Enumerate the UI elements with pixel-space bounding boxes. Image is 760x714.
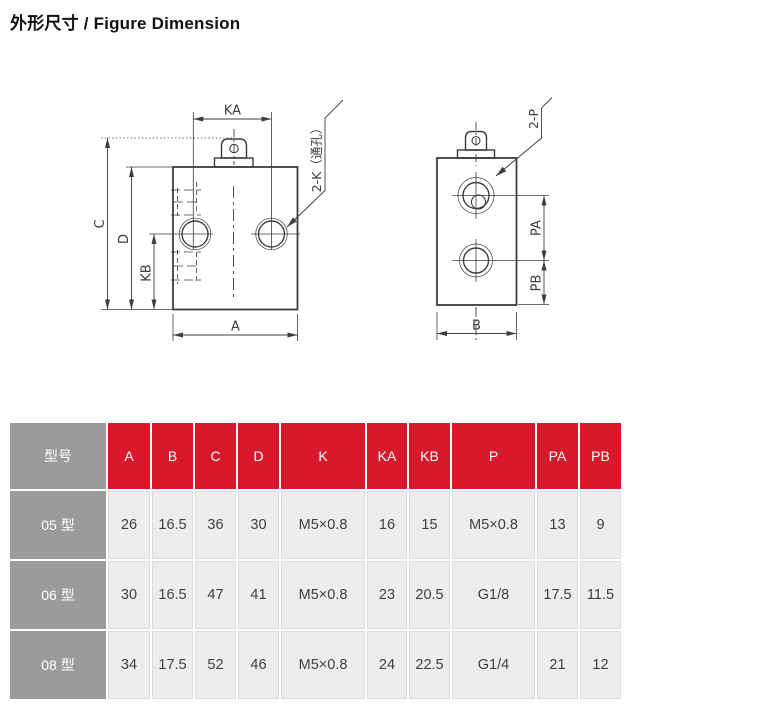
col-header-b: B: [152, 423, 193, 489]
table-cell: 21: [537, 631, 578, 699]
col-header-model: 型号: [10, 423, 106, 489]
table-row-06: 06 型 30 16.5 47 41 M5×0.8 23 20.5 G1/8 1…: [10, 561, 621, 629]
dim-label-a: A: [231, 320, 240, 335]
table-cell: M5×0.8: [281, 491, 365, 559]
table-cell: 47: [195, 561, 236, 629]
callout-label-2p: 2-P: [526, 109, 541, 129]
table-cell: 17.5: [152, 631, 193, 699]
table-cell: 52: [195, 631, 236, 699]
valve-body-side: [437, 158, 517, 305]
col-header-ka: KA: [367, 423, 407, 489]
title-block: 外形尺寸 / Figure Dimension: [0, 0, 760, 80]
table-cell: 34: [108, 631, 150, 699]
side-view: [437, 98, 552, 342]
dim-label-b: B: [472, 319, 481, 334]
col-header-c: C: [195, 423, 236, 489]
table-cell: 20.5: [409, 561, 450, 629]
dim-label-kb: KB: [140, 264, 155, 281]
table-cell: M5×0.8: [281, 561, 365, 629]
col-header-k: K: [281, 423, 365, 489]
dimension-table: 型号 A B C D K KA KB P PA PB 05 型 26 16.5 …: [8, 421, 623, 701]
dim-label-d: D: [117, 234, 132, 244]
table-cell: 12: [580, 631, 621, 699]
table-cell: M5×0.8: [281, 631, 365, 699]
col-header-d: D: [238, 423, 279, 489]
table-cell: 11.5: [580, 561, 621, 629]
col-header-a: A: [108, 423, 150, 489]
table-cell: G1/8: [452, 561, 535, 629]
table-cell: 24: [367, 631, 407, 699]
table-cell: 13: [537, 491, 578, 559]
valve-body-front: [173, 167, 298, 310]
callout-2p-leader: [496, 98, 552, 177]
model-cell: 06 型: [10, 561, 106, 629]
table-cell: 30: [108, 561, 150, 629]
callout-label-2k: 2-K（通孔）: [309, 122, 324, 193]
dim-label-pa: PA: [530, 220, 545, 236]
model-cell: 05 型: [10, 491, 106, 559]
table-cell: 16.5: [152, 561, 193, 629]
col-header-pa: PA: [537, 423, 578, 489]
dim-d: [126, 167, 174, 310]
table-cell: 17.5: [537, 561, 578, 629]
figure-dimension-drawing: KA C D KB A 2-K（通孔）: [0, 80, 760, 360]
page-title: 外形尺寸 / Figure Dimension: [10, 14, 240, 33]
dim-label-c: C: [93, 219, 108, 228]
table-cell: 23: [367, 561, 407, 629]
table-cell: 36: [195, 491, 236, 559]
table-cell: M5×0.8: [452, 491, 535, 559]
table-cell: 46: [238, 631, 279, 699]
table-cell: G1/4: [452, 631, 535, 699]
model-cell: 08 型: [10, 631, 106, 699]
table-cell: 15: [409, 491, 450, 559]
table-cell: 16.5: [152, 491, 193, 559]
table-header-row: 型号 A B C D K KA KB P PA PB: [10, 423, 621, 489]
dim-label-pb: PB: [530, 275, 545, 292]
front-view: [101, 100, 343, 341]
table-row-08: 08 型 34 17.5 52 46 M5×0.8 24 22.5 G1/4 2…: [10, 631, 621, 699]
table-cell: 26: [108, 491, 150, 559]
col-header-kb: KB: [409, 423, 450, 489]
col-header-p: P: [452, 423, 535, 489]
table-cell: 22.5: [409, 631, 450, 699]
port-hole-top: [452, 172, 549, 219]
hidden-thread-lines: [171, 182, 201, 284]
table-cell: 9: [580, 491, 621, 559]
col-header-pb: PB: [580, 423, 621, 489]
table-row-05: 05 型 26 16.5 36 30 M5×0.8 16 15 M5×0.8 1…: [10, 491, 621, 559]
table-cell: 30: [238, 491, 279, 559]
table-cell: 16: [367, 491, 407, 559]
table-cell: 41: [238, 561, 279, 629]
dim-label-ka: KA: [224, 104, 241, 119]
